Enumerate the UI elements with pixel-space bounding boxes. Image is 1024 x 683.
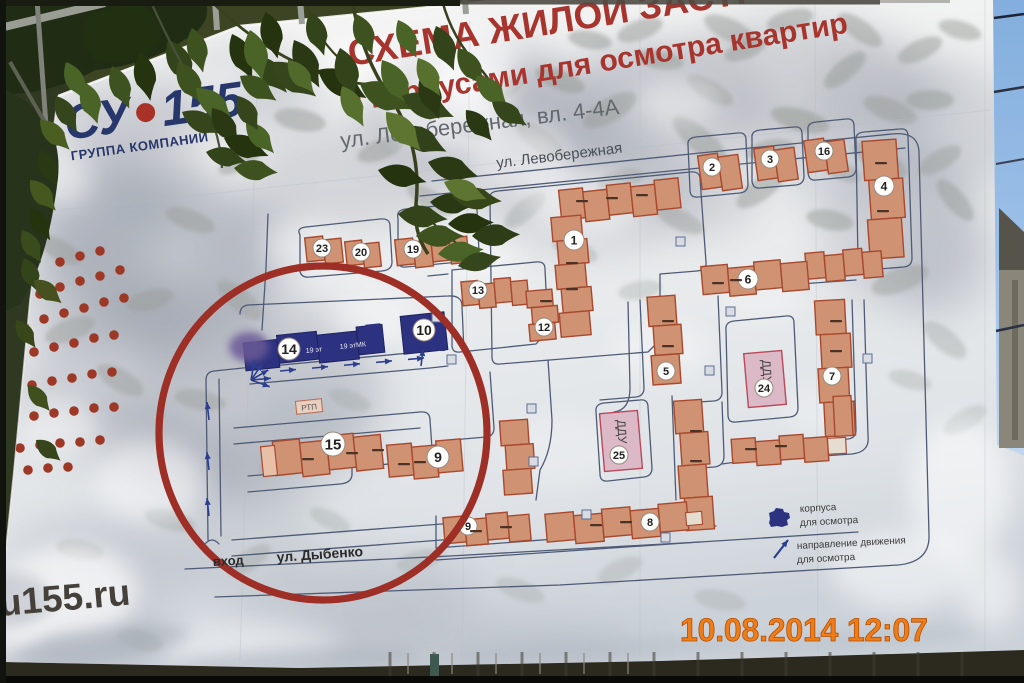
svg-text:2: 2 [709, 162, 715, 174]
svg-text:корпуса: корпуса [800, 502, 837, 515]
svg-text:4: 4 [881, 179, 888, 193]
svg-text:1: 1 [571, 233, 578, 247]
svg-text:12: 12 [538, 322, 550, 334]
svg-text:23: 23 [316, 243, 328, 255]
svg-text:24: 24 [758, 383, 771, 395]
svg-text:14: 14 [281, 341, 297, 357]
svg-text:вход: вход [212, 552, 244, 569]
svg-text:19: 19 [407, 244, 419, 256]
svg-text:ДДУ: ДДУ [614, 419, 630, 444]
svg-text:25: 25 [613, 450, 625, 462]
svg-text:10: 10 [416, 322, 432, 338]
svg-text:3: 3 [767, 154, 773, 166]
svg-text:9: 9 [434, 449, 442, 465]
svg-text:7: 7 [829, 371, 835, 383]
svg-text:РТП: РТП [301, 402, 318, 413]
svg-text:8: 8 [647, 517, 653, 529]
svg-text:13: 13 [472, 285, 484, 297]
svg-text:16: 16 [818, 146, 830, 158]
svg-text:6: 6 [745, 272, 752, 286]
svg-text:5: 5 [663, 366, 669, 378]
svg-text:10.08.2014 12:07: 10.08.2014 12:07 [680, 612, 928, 648]
svg-text:20: 20 [355, 247, 367, 259]
svg-text:15: 15 [325, 436, 342, 453]
